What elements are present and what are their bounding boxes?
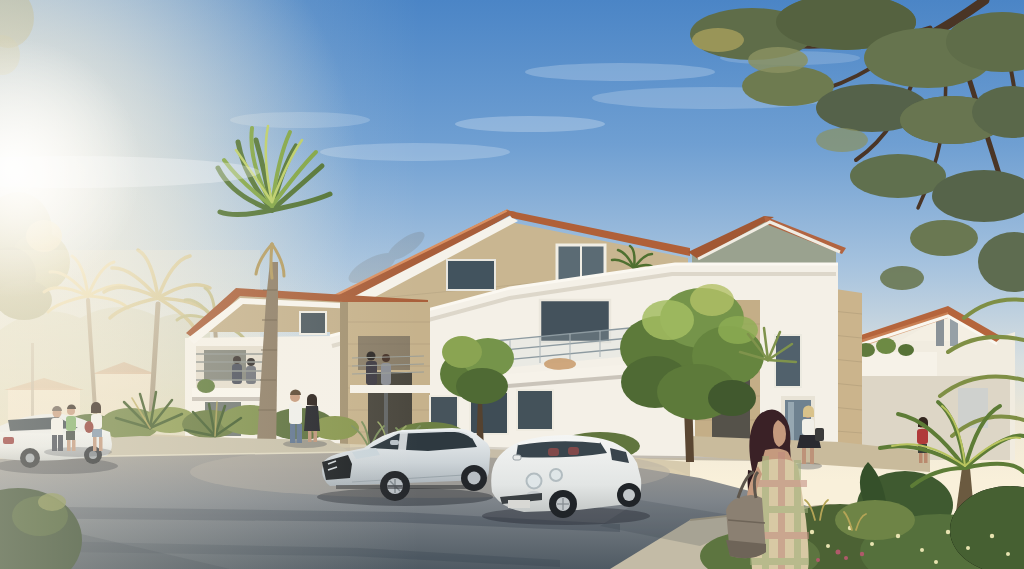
- headlight: [527, 474, 542, 489]
- architectural-render: [0, 0, 1024, 569]
- lounge-chair: [544, 358, 576, 370]
- handbag: [815, 428, 824, 441]
- red-seat: [568, 447, 579, 455]
- red-seat: [548, 448, 559, 456]
- attic-window: [447, 260, 495, 290]
- license-plate: [508, 500, 530, 508]
- headlight: [550, 469, 562, 481]
- render-scene: [0, 0, 1024, 569]
- mirror: [513, 455, 521, 460]
- window: [517, 390, 553, 430]
- gable-window: [936, 319, 944, 346]
